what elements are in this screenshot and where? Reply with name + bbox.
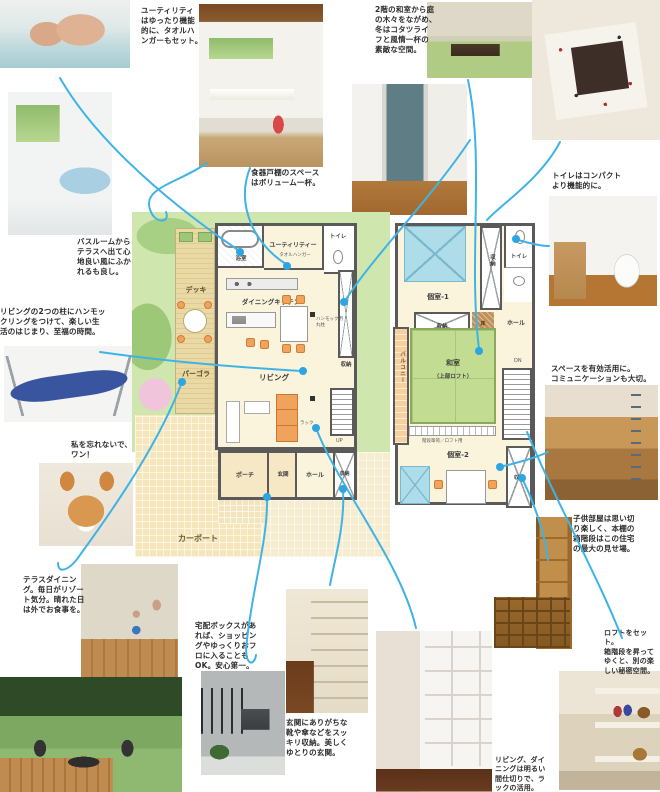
photo-room-divider: [376, 631, 492, 792]
hammock-pillar: [310, 312, 315, 317]
closet-bottom-2f-label: 収納: [509, 474, 529, 481]
bath-label: 浴室: [226, 254, 256, 262]
magazine-page: ユーティリティ はゆったり機能 的に、タオルハ ンガーもセット。 2階の和室から…: [0, 0, 660, 792]
caption-terrace: テラスダイニン グ。毎日がリゾー ト気分。晴れた日 は外でお食事を。: [23, 575, 87, 615]
photo-loft: [559, 671, 660, 790]
toilet-2f-label: トイレ: [506, 252, 532, 260]
bathtub: [221, 230, 259, 248]
sofa: [244, 401, 270, 414]
hall-2f-label: ホール: [500, 318, 532, 327]
room-toilet-2f: トイレ: [504, 226, 532, 268]
house-2f: 個室-1 収納 トイレ ホール 収納 床 和室 （上部ロフト）: [395, 223, 535, 505]
chair-marker: [296, 344, 305, 353]
washbasin: [513, 276, 525, 286]
kitchen-island: [226, 312, 276, 328]
photo-shoe-closet: [286, 589, 368, 713]
photo-box-stairs: [494, 597, 570, 648]
room1-label: 個室-1: [412, 292, 464, 302]
toilet-1f-label: トイレ: [324, 232, 352, 240]
caption-utility: ユーティリティ はゆったり機能 的に、タオルハ ンガーもセット。: [141, 6, 203, 46]
porch-label: ポーチ: [227, 470, 263, 479]
hammock-pillar: [310, 396, 315, 401]
caption-shoes: 玄関にありがちな 靴や傘などをスッ キリ収納。美しく ゆとりの玄関。: [286, 718, 350, 758]
closet-top-2f: 収納: [480, 226, 502, 310]
closet-right: [338, 270, 354, 358]
stairs-2f: [502, 368, 532, 440]
chair-marker: [177, 335, 185, 343]
towel-hanger-note: タオルハンガー: [272, 252, 318, 258]
photo-bunk-bed: [545, 385, 658, 500]
closet-right-label: 収納: [334, 360, 358, 368]
bed-room1: [404, 226, 466, 282]
planter: [198, 232, 212, 242]
balcony-label: バルコニー: [398, 351, 406, 384]
utility-label: ユーティリティー: [264, 240, 322, 249]
deck-label: デッキ: [178, 285, 214, 295]
caption-kids: 子供部屋は思い切 り楽しく、本棚の 箱階段はこの住宅 の最大の見せ場。: [573, 514, 637, 554]
bed-room2: [400, 466, 430, 504]
sofa: [226, 401, 240, 443]
closet-bottom-2f: 収納: [506, 446, 532, 508]
chair-marker: [260, 340, 269, 349]
porch-tile: [218, 500, 268, 524]
photo-toilet: [549, 196, 657, 306]
photo-bathroom-window: [8, 92, 112, 235]
chair-marker: [282, 344, 291, 353]
caption-dog: 私を忘れないで、 ワン！: [71, 440, 139, 460]
photo-terrace-dining: [81, 564, 178, 678]
washbasin-room: [504, 268, 532, 302]
planter: [179, 232, 193, 242]
pillar-note: ハンモック用 丸柱: [316, 316, 350, 328]
washitsu-label: 和室: [434, 358, 472, 368]
caption-loft: ロフトをセット。 箱階段を昇って ゆくと、別の楽 しい秘密空間。: [604, 629, 660, 676]
balcony: バルコニー: [393, 327, 409, 445]
stairs-dn-label: DN: [514, 358, 522, 364]
stair-tansu: [408, 426, 496, 436]
caption-tatami: 2階の和室から庭 の木々をながめ、 冬はコタツライ フと風情一杯の 素敵な空間。: [375, 5, 441, 55]
room-washitsu: 和室 （上部ロフト）: [410, 328, 496, 424]
kitchen-counter: [226, 278, 298, 290]
chair-marker: [204, 335, 212, 343]
photo-tatami-room: [427, 2, 533, 78]
stairs-1f: [330, 388, 354, 436]
caption-divider: リビング、ダイ ニングは明るい 間仕切りで、ラ ックの活用。: [495, 756, 553, 792]
toilet-fixture: [333, 250, 343, 264]
floor-plan-1f: カーポート デッキ パーゴラ 浴室 ユーティリティー タオルハンガー トイ: [132, 212, 390, 557]
caption-delivery: 宅配ボックスがあ れば、ショッピン グやゆっくりおフ ロに入ることも OK。安心…: [195, 621, 259, 671]
chair-marker: [434, 480, 443, 489]
tokonoma-label: 床: [478, 320, 488, 327]
kotatsu-top: [571, 41, 629, 96]
chair-marker: [177, 301, 185, 309]
house-1f: 浴室 ユーティリティー タオルハンガー トイレ ダイニングキッチン 収納 リビン…: [215, 223, 357, 450]
stair-tansu-note: 階段箪笥／ロフト用: [422, 438, 492, 444]
chair-marker: [204, 301, 212, 309]
entrance-label: 玄関: [271, 470, 295, 478]
carport-label: カーポート: [153, 533, 243, 544]
rack-label: ラック: [300, 420, 314, 426]
caption-hammock: リビングの2つの柱にハンモッ クリングをつけて、楽しい生 活のはじまり、至福の時…: [0, 307, 112, 337]
photo-utility-room: [199, 4, 323, 167]
room-toilet-1f: トイレ: [324, 226, 354, 274]
desk-room2: [446, 470, 486, 504]
caption-toilet: トイレはコンパクト より機能的に。: [552, 171, 636, 191]
caption-bunk: スペースを有効活用に。 コミュニケーションも大切。: [551, 364, 655, 384]
room-entrance: 玄関: [267, 453, 295, 497]
toilet-fixture: [515, 230, 525, 244]
chair-marker: [282, 295, 291, 304]
chair-marker: [488, 480, 497, 489]
rack-shelf: [276, 394, 298, 442]
chair-marker: [246, 338, 255, 347]
photo-kotatsu-futon: [532, 0, 660, 140]
photo-garden-table: [0, 677, 182, 792]
room-bath: 浴室: [218, 226, 264, 268]
floor-plan-2f: 個室-1 収納 トイレ ホール 収納 床 和室 （上部ロフト）: [393, 215, 540, 515]
caption-cupboard: 食器戸棚のスペース はボリューム一杯。: [251, 168, 331, 188]
living-label: リビング: [242, 372, 306, 383]
photo-delivery-box: [201, 671, 285, 775]
photo-hammock: [4, 346, 133, 422]
chair-marker: [296, 295, 305, 304]
closet-bottom-1f-label: 収納: [335, 470, 354, 477]
dining-table: [280, 306, 308, 342]
photo-kitchen-cupboard: [352, 84, 467, 215]
room2-label: 個室-2: [432, 450, 484, 460]
room-utility: ユーティリティー タオルハンガー: [264, 226, 324, 270]
photo-bath-couple: [0, 0, 130, 68]
caption-bathroom: バスルームから テラスへ出て心 地良い風にふか れるも良し。: [77, 237, 135, 277]
photo-dog: [39, 463, 133, 546]
room-hall-1f: ホール: [295, 453, 333, 497]
stairs-up-label: UP: [336, 438, 343, 444]
pergola-label: パーゴラ: [178, 369, 214, 379]
hall-1f-label: ホール: [300, 470, 330, 479]
closet-top-2f-label: 収納: [488, 254, 496, 267]
entrance-block: ポーチ 玄関 ホール 収納: [218, 450, 357, 500]
deck-area: デッキ パーゴラ: [175, 228, 215, 414]
deck-table: [183, 309, 207, 333]
loft-note-label: （上部ロフト）: [418, 372, 488, 380]
closet-bottom-1f: 収納: [333, 453, 354, 497]
